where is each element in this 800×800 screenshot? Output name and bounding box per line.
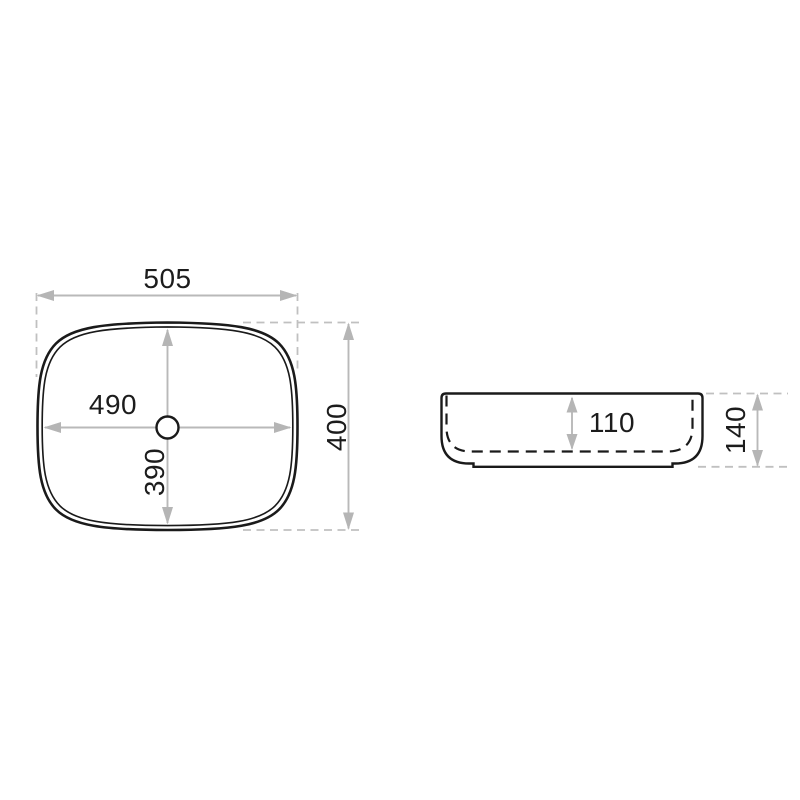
drawing-canvas: 505 400 490 390: [0, 0, 800, 800]
dimension-label-inner-depth: 390: [139, 448, 170, 496]
basin-top-view: 505 400 490 390: [37, 263, 363, 530]
dimension-label-outer-width: 505: [143, 263, 191, 294]
arrowhead-400-top: [343, 323, 354, 341]
arrowhead-505-left: [37, 290, 55, 301]
arrowhead-140-bottom: [752, 450, 763, 467]
technical-drawing: 505 400 490 390: [0, 0, 800, 800]
arrowhead-140-top: [752, 394, 763, 411]
dimension-label-inner-height: 110: [589, 407, 635, 438]
dimension-label-inner-width: 490: [89, 389, 137, 420]
dimension-label-outer-depth: 400: [321, 403, 352, 451]
arrowhead-400-bottom: [343, 513, 354, 531]
dimension-label-outer-height: 140: [720, 406, 751, 454]
basin-side-view: 110 140: [442, 394, 789, 467]
drain-hole: [157, 417, 179, 439]
arrowhead-505-right: [280, 290, 298, 301]
